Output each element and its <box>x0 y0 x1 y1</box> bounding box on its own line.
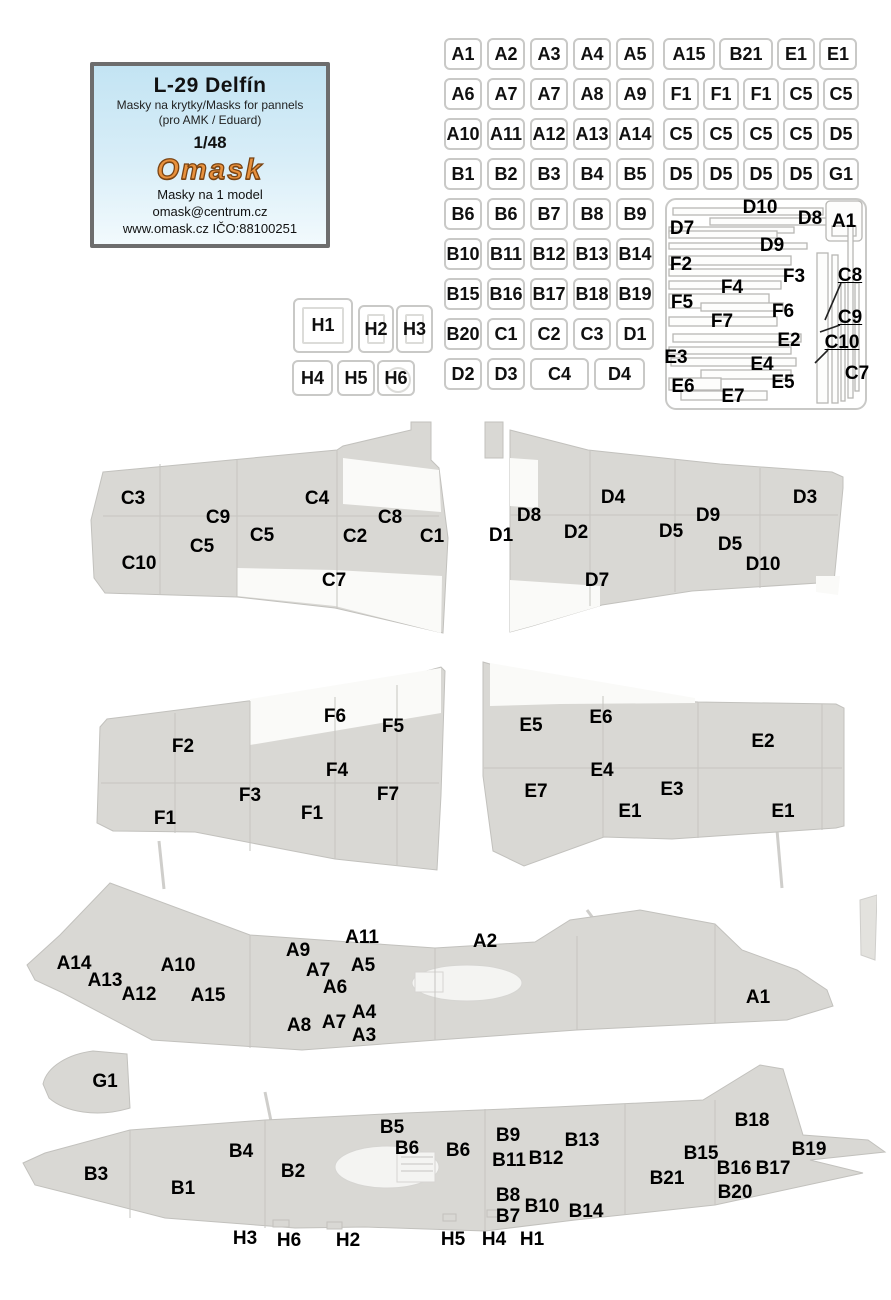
mask-cell: A13 <box>573 118 611 150</box>
mask-cell: B18 <box>573 278 611 310</box>
mask-grid-row: B1B2B3B4B5 <box>444 158 654 190</box>
mask-cutout-shape <box>302 307 344 344</box>
mask-cell: B21 <box>719 38 773 70</box>
note-line: Masky na 1 model <box>94 187 326 204</box>
mask-cell: B13 <box>573 238 611 270</box>
mask-cell: D5 <box>703 158 739 190</box>
mask-cutout-shape <box>385 367 411 393</box>
mask-cell: C5 <box>823 78 859 110</box>
mask-grid-row: A6A7A7A8A9 <box>444 78 654 110</box>
mask-cell: B12 <box>530 238 568 270</box>
mask-cell: D2 <box>444 358 482 390</box>
mask-cell: C3 <box>573 318 611 350</box>
mask-cell: A6 <box>444 78 482 110</box>
mask-cell: A9 <box>616 78 654 110</box>
mask-cell: B6 <box>444 198 482 230</box>
mask-cell: G1 <box>823 158 859 190</box>
mask-cell: B11 <box>487 238 525 270</box>
mask-cell: C5 <box>743 118 779 150</box>
mask-cell: C5 <box>663 118 699 150</box>
mask-cell: F1 <box>743 78 779 110</box>
mask-grid-row: A15B21E1E1 <box>663 38 859 70</box>
wing-top-left-diagram <box>85 420 470 650</box>
scale-label: 1/48 <box>94 133 326 153</box>
mask-cell: C4 <box>530 358 589 390</box>
mask-cell: D5 <box>823 118 859 150</box>
mask-cell: A7 <box>487 78 525 110</box>
mask-cell: E1 <box>777 38 815 70</box>
mask-grid-row: B6B6B7B8B9 <box>444 198 654 230</box>
mask-cell: B1 <box>444 158 482 190</box>
mask-grid-row: D5D5D5D5G1 <box>663 158 859 190</box>
product-compatibility: (pro AMK / Eduard) <box>94 113 326 128</box>
mask-cell: B16 <box>487 278 525 310</box>
mask-cell: D5 <box>743 158 779 190</box>
instruction-sheet: L-29 Delfín Masky na krytky/Masks for pa… <box>0 0 891 1300</box>
mask-cell: B3 <box>530 158 568 190</box>
mask-cell: H2 <box>358 305 394 353</box>
mask-cell: C1 <box>487 318 525 350</box>
mask-cell: D5 <box>663 158 699 190</box>
wing-bottom-left-diagram <box>85 655 475 890</box>
brand-logo: Omask <box>94 154 326 187</box>
mask-cell: A7 <box>530 78 568 110</box>
mask-cell: A12 <box>530 118 568 150</box>
mask-grid-row: A1A2A3A4A5 <box>444 38 654 70</box>
mask-cell: A8 <box>573 78 611 110</box>
mask-cell: A1 <box>444 38 482 70</box>
mask-cell: D1 <box>616 318 654 350</box>
product-title: L-29 Delfín <box>94 74 326 98</box>
strip-panel-diagram <box>665 198 867 410</box>
wing-top-right-diagram <box>470 420 880 650</box>
mask-cell: A5 <box>616 38 654 70</box>
mask-cell: H5 <box>337 360 375 396</box>
wing-bottom-right-diagram <box>470 648 880 890</box>
mask-grid-row: B10B11B12B13B14 <box>444 238 654 270</box>
mask-grid-main: A1A2A3A4A5A6A7A7A8A9A10A11A12A13A14B1B2B… <box>444 38 654 398</box>
mask-cell: A10 <box>444 118 482 150</box>
mask-grid-row: B15B16B17B18B19 <box>444 278 654 310</box>
fuselage-bottom-diagram <box>15 1055 891 1255</box>
mask-cell: B15 <box>444 278 482 310</box>
product-subtitle: Masky na krytky/Masks for pannels <box>94 98 326 113</box>
fuselage-top-diagram <box>15 880 877 1065</box>
email-line: omask@centrum.cz <box>94 204 326 221</box>
mask-cell: B5 <box>616 158 654 190</box>
mask-cell: C2 <box>530 318 568 350</box>
mask-cell: C5 <box>783 78 819 110</box>
mask-cell: B7 <box>530 198 568 230</box>
mask-cutout-shape <box>367 314 385 344</box>
mask-cell: A15 <box>663 38 715 70</box>
website-line: www.omask.cz IČO:88100251 <box>94 221 326 238</box>
mask-grid-row: A10A11A12A13A14 <box>444 118 654 150</box>
mask-cell: B2 <box>487 158 525 190</box>
mask-cell: A4 <box>573 38 611 70</box>
mask-grid-row: F1F1F1C5C5 <box>663 78 859 110</box>
mask-grid-row: D2D3C4D4 <box>444 358 654 390</box>
mask-cell: B14 <box>616 238 654 270</box>
mask-cell: A11 <box>487 118 525 150</box>
mask-cell: H6 <box>377 360 415 396</box>
mask-cell: H1 <box>293 298 353 353</box>
mask-cell: F1 <box>663 78 699 110</box>
mask-cell: F1 <box>703 78 739 110</box>
mask-cell: C5 <box>783 118 819 150</box>
mask-cell: B6 <box>487 198 525 230</box>
mask-cell: B19 <box>616 278 654 310</box>
mask-grid-right: A15B21E1E1F1F1F1C5C5C5C5C5C5D5D5D5D5D5G1 <box>663 38 859 198</box>
mask-cell: A3 <box>530 38 568 70</box>
mask-cell: D4 <box>594 358 645 390</box>
mask-cell: D5 <box>783 158 819 190</box>
mask-cell: H4 <box>292 360 333 396</box>
mask-cell: A14 <box>616 118 654 150</box>
product-info-box: L-29 Delfín Masky na krytky/Masks for pa… <box>90 62 330 248</box>
mask-cell: B8 <box>573 198 611 230</box>
mask-cell: D3 <box>487 358 525 390</box>
mask-cutout-shape <box>405 314 424 344</box>
mask-cell: E1 <box>819 38 857 70</box>
mask-grid-row: C5C5C5C5D5 <box>663 118 859 150</box>
mask-cell: A2 <box>487 38 525 70</box>
mask-grid-row: B20C1C2C3D1 <box>444 318 654 350</box>
mask-cell: B10 <box>444 238 482 270</box>
mask-cell: H3 <box>396 305 433 353</box>
mask-cell: B4 <box>573 158 611 190</box>
mask-cell: B17 <box>530 278 568 310</box>
mask-cell: B20 <box>444 318 482 350</box>
mask-cell: B9 <box>616 198 654 230</box>
mask-cell: C5 <box>703 118 739 150</box>
